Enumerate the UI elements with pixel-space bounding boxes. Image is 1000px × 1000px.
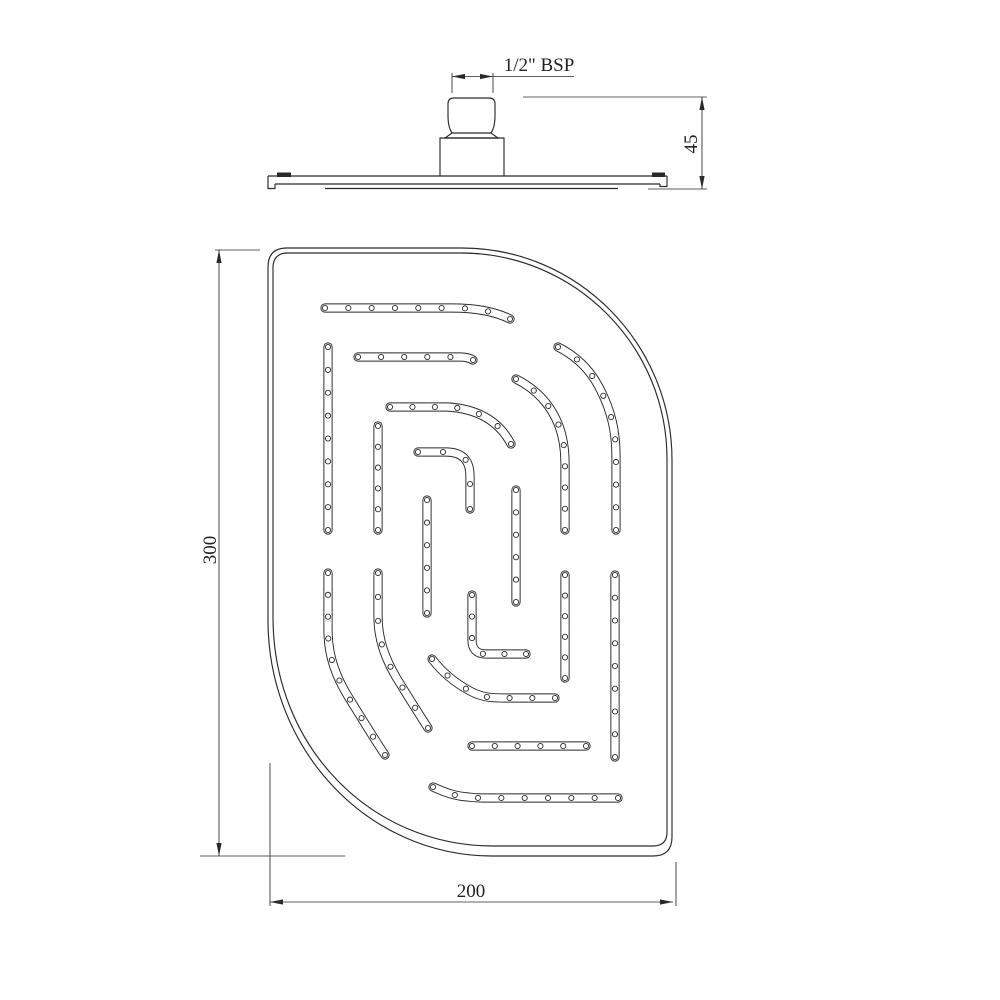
technical-drawing-page: 1/2" BSP 45 300 200 bbox=[0, 0, 1000, 1000]
dimension-label-bsp-thread: 1/2" BSP bbox=[504, 55, 575, 76]
dimension-labels: 1/2" BSP 45 300 200 bbox=[200, 55, 702, 902]
side-elevation-view bbox=[268, 98, 667, 189]
dimension-label-width-200: 200 bbox=[457, 881, 486, 902]
dimension-label-height-45: 45 bbox=[681, 135, 702, 154]
plan-view bbox=[268, 248, 672, 856]
dimension-lines bbox=[200, 73, 707, 906]
shower-head-technical-drawing: 1/2" BSP 45 300 200 bbox=[0, 0, 1000, 1000]
dimension-label-length-300: 300 bbox=[200, 536, 221, 565]
